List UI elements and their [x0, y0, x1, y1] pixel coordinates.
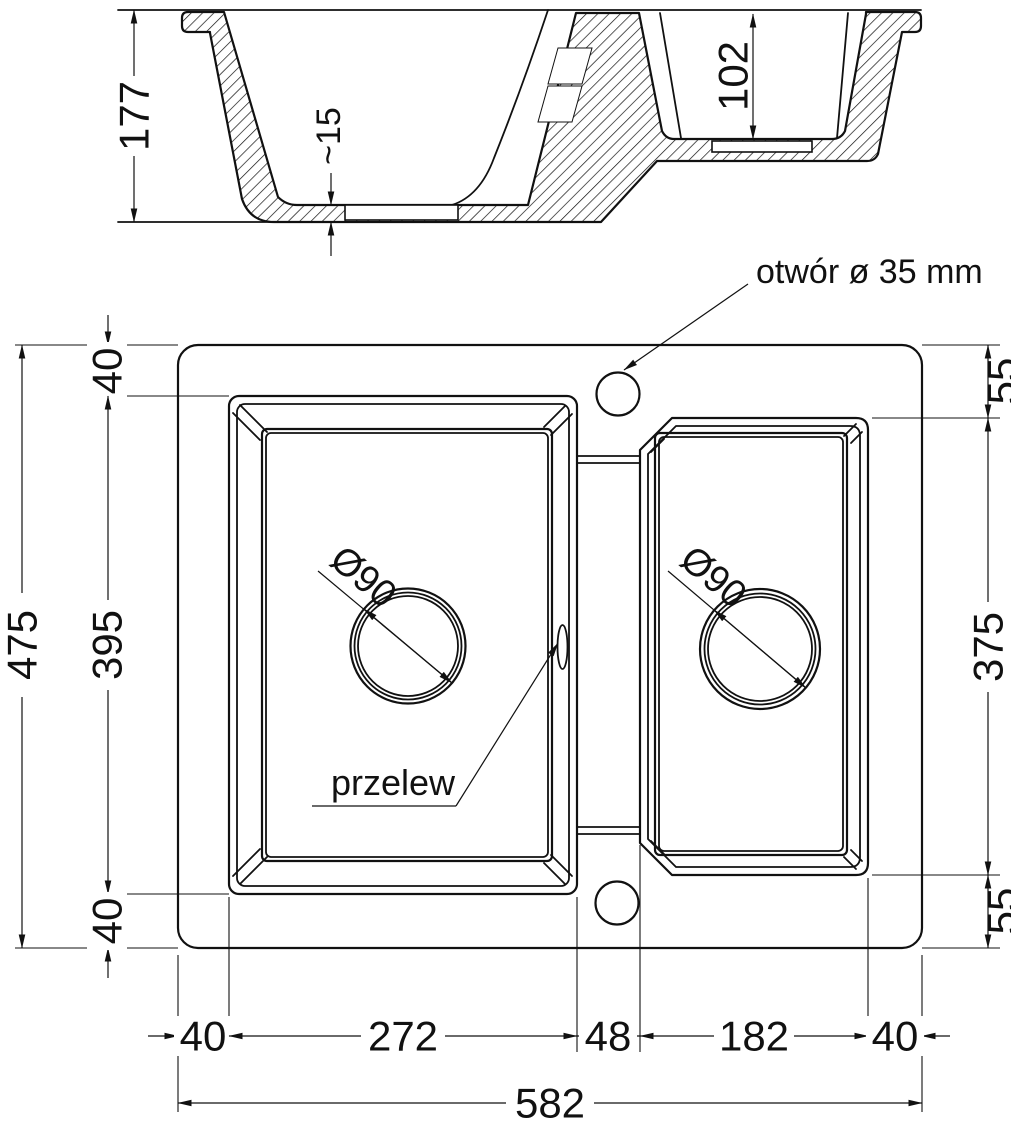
overflow-leader [456, 643, 558, 806]
dim-40-bottom-left: 40 [84, 892, 131, 950]
main-drain-dim: Ø90 [318, 538, 452, 683]
dim-475-label: 475 [0, 610, 46, 680]
main-bowl-outer [229, 396, 577, 894]
dim-55-bottom: 55 [979, 888, 1011, 935]
tap-hole-label: otwór ø 35 mm [756, 253, 983, 291]
small-drain-recess [712, 141, 812, 152]
dim-395-label: 395 [84, 610, 131, 680]
overflow-label: przelew [331, 762, 456, 803]
dim-40b1-label: 40 [180, 1013, 227, 1060]
main-bowl-wall-line [452, 10, 548, 205]
dim-177-label: 177 [111, 81, 158, 151]
main-drain-label: Ø90 [322, 538, 404, 616]
main-drain-recess [345, 205, 458, 220]
dim-582-label: 582 [515, 1080, 585, 1127]
small-bowl-wall-line-left [660, 13, 681, 138]
dim-177: 177 [111, 76, 158, 156]
dim-15: ~15 [310, 107, 348, 165]
dim-40-bottom2: 40 [866, 1013, 924, 1060]
dim-40bl-label: 40 [84, 898, 131, 945]
dim-48: 48 [579, 1013, 637, 1060]
divider-edges [577, 456, 640, 834]
dim-582: 582 [506, 1080, 594, 1127]
dim-475: 475 [0, 593, 46, 697]
dim-55-top: 55 [979, 358, 1011, 405]
dim-40-bottom1: 40 [174, 1013, 232, 1060]
extension-lines [15, 345, 1000, 1112]
dim-182: 182 [714, 1013, 794, 1060]
dim-55bot-label: 55 [979, 888, 1011, 935]
sink-technical-drawing: 177 ~15 102 [0, 0, 1011, 1131]
dim-48-label: 48 [585, 1013, 632, 1060]
dim-102: 102 [710, 41, 757, 111]
dim-55top-label: 55 [979, 358, 1011, 405]
dim-40-top-left: 40 [84, 342, 131, 400]
dim-375: 375 [965, 602, 1011, 692]
overflow-slot [558, 625, 568, 669]
dim-375-label: 375 [965, 612, 1011, 682]
small-bowl-inner [655, 433, 847, 855]
main-bowl-mid [237, 404, 569, 886]
tap-hole-leader [624, 284, 748, 370]
tap-hole-bottom [596, 882, 639, 925]
dim-272-label: 272 [368, 1013, 438, 1060]
tap-hole-top [597, 373, 640, 416]
small-bowl-outer [640, 418, 868, 875]
dim-15-label: ~15 [310, 107, 348, 165]
drawing-canvas: 177 ~15 102 [0, 0, 1011, 1131]
small-bowl-mid [648, 426, 860, 867]
plan-view: Ø90 Ø90 otwór ø 35 mm przelew [0, 253, 1011, 1127]
section-view: 177 ~15 102 [111, 10, 922, 256]
dim-182-label: 182 [719, 1013, 789, 1060]
dim-272: 272 [361, 1013, 445, 1060]
dim-40b2-label: 40 [872, 1013, 919, 1060]
main-bowl-corner-facets [233, 405, 572, 884]
small-drain-dim: Ø90 [668, 538, 806, 688]
small-drain-label: Ø90 [672, 538, 754, 616]
dim-102-label: 102 [710, 41, 757, 111]
dim-395: 395 [84, 600, 131, 690]
dim-40tl-label: 40 [84, 348, 131, 395]
